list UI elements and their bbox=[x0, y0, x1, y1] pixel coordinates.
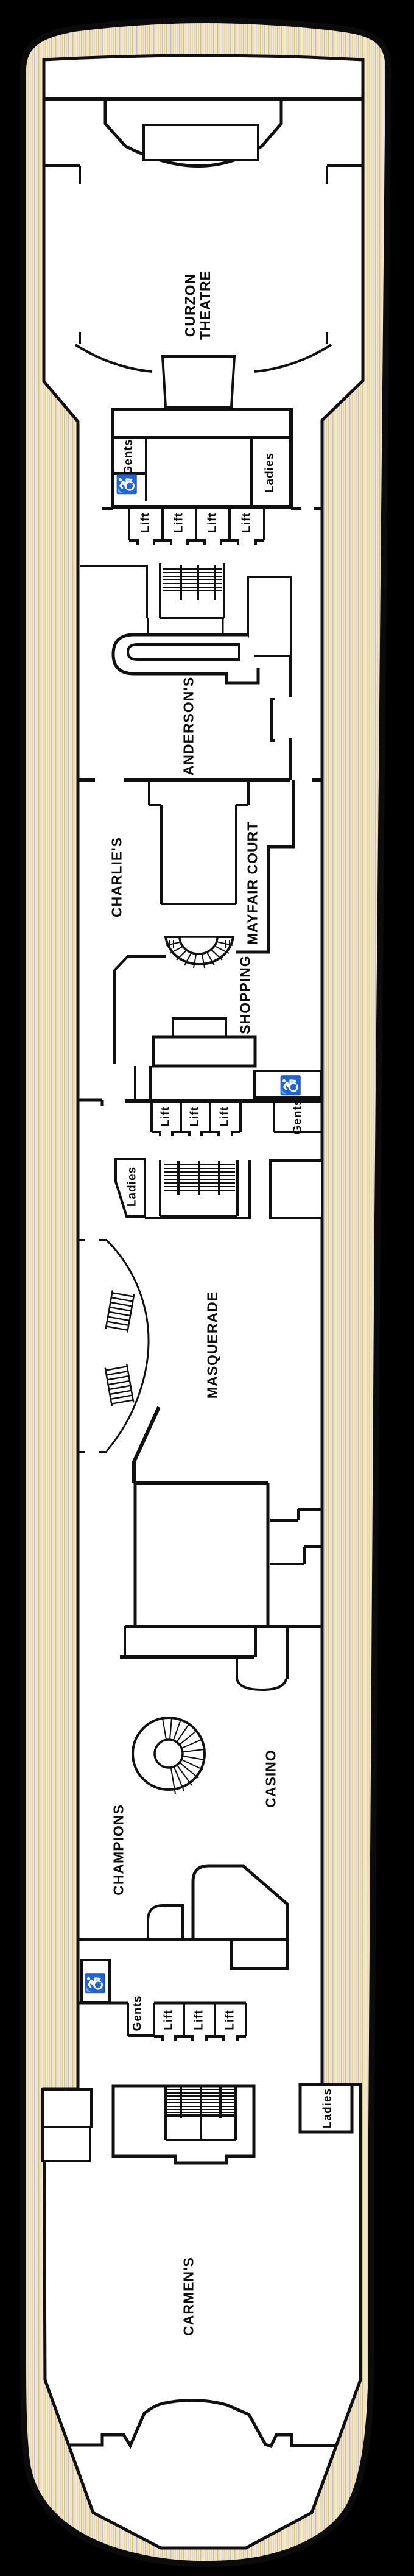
gents-label-1: Gents bbox=[123, 439, 136, 475]
theatre-stage bbox=[144, 125, 258, 160]
wheelchair-icon: ♿ bbox=[85, 1972, 107, 1994]
wheelchair-icon: ♿ bbox=[117, 473, 138, 495]
lift-label-10: Lift bbox=[225, 2010, 237, 2030]
lift-label-7: Lift bbox=[219, 1106, 232, 1127]
ladies-label-1: Ladies bbox=[264, 453, 277, 493]
venue-label-carmens: CARMEN'S bbox=[181, 2257, 197, 2336]
venue-label-andersons: ANDERSON'S bbox=[181, 677, 197, 775]
lift-label-3: Lift bbox=[207, 512, 220, 533]
curzon-line-1: CURZON bbox=[183, 270, 198, 340]
venue-label-champions: CHAMPIONS bbox=[111, 1804, 127, 1896]
deck-plan-drawing bbox=[0, 0, 414, 2576]
lift-label-2: Lift bbox=[174, 512, 186, 533]
wheelchair-icon: ♿ bbox=[281, 1074, 302, 1096]
venue-label-shopping: SHOPPING bbox=[238, 955, 253, 1034]
venue-label-charlies: CHARLIE'S bbox=[110, 837, 125, 917]
venue-label-curzon-theatre: CURZON THEATRE bbox=[183, 270, 213, 340]
gents-label-2: Gents bbox=[292, 1099, 305, 1135]
venue-label-casino: CASINO bbox=[264, 1749, 279, 1807]
lift-label-6: Lift bbox=[189, 1106, 202, 1127]
venue-label-masquerade: MASQUERADE bbox=[205, 1291, 220, 1399]
shop-kiosk bbox=[173, 1018, 226, 1037]
projection-booth bbox=[163, 356, 234, 407]
ladies-label-2: Ladies bbox=[127, 1166, 139, 1207]
lift-label-1: Lift bbox=[140, 512, 153, 533]
lift-label-4: Lift bbox=[241, 512, 254, 533]
venue-label-mayfair-court: MAYFAIR COURT bbox=[245, 822, 261, 945]
gents-label-3: Gents bbox=[132, 1996, 145, 2031]
bar-back-room bbox=[231, 1939, 287, 1969]
lift-label-9: Lift bbox=[194, 2010, 206, 2030]
shop-block bbox=[153, 1037, 255, 1066]
ladies-label-3: Ladies bbox=[322, 2088, 335, 2128]
curzon-line-2: THEATRE bbox=[198, 270, 213, 340]
lift-label-8: Lift bbox=[163, 2010, 176, 2030]
deck-plan-canvas: CURZON THEATRE ANDERSON'S CHARLIE'S MAYF… bbox=[0, 0, 414, 2576]
lift-label-5: Lift bbox=[160, 1106, 173, 1127]
